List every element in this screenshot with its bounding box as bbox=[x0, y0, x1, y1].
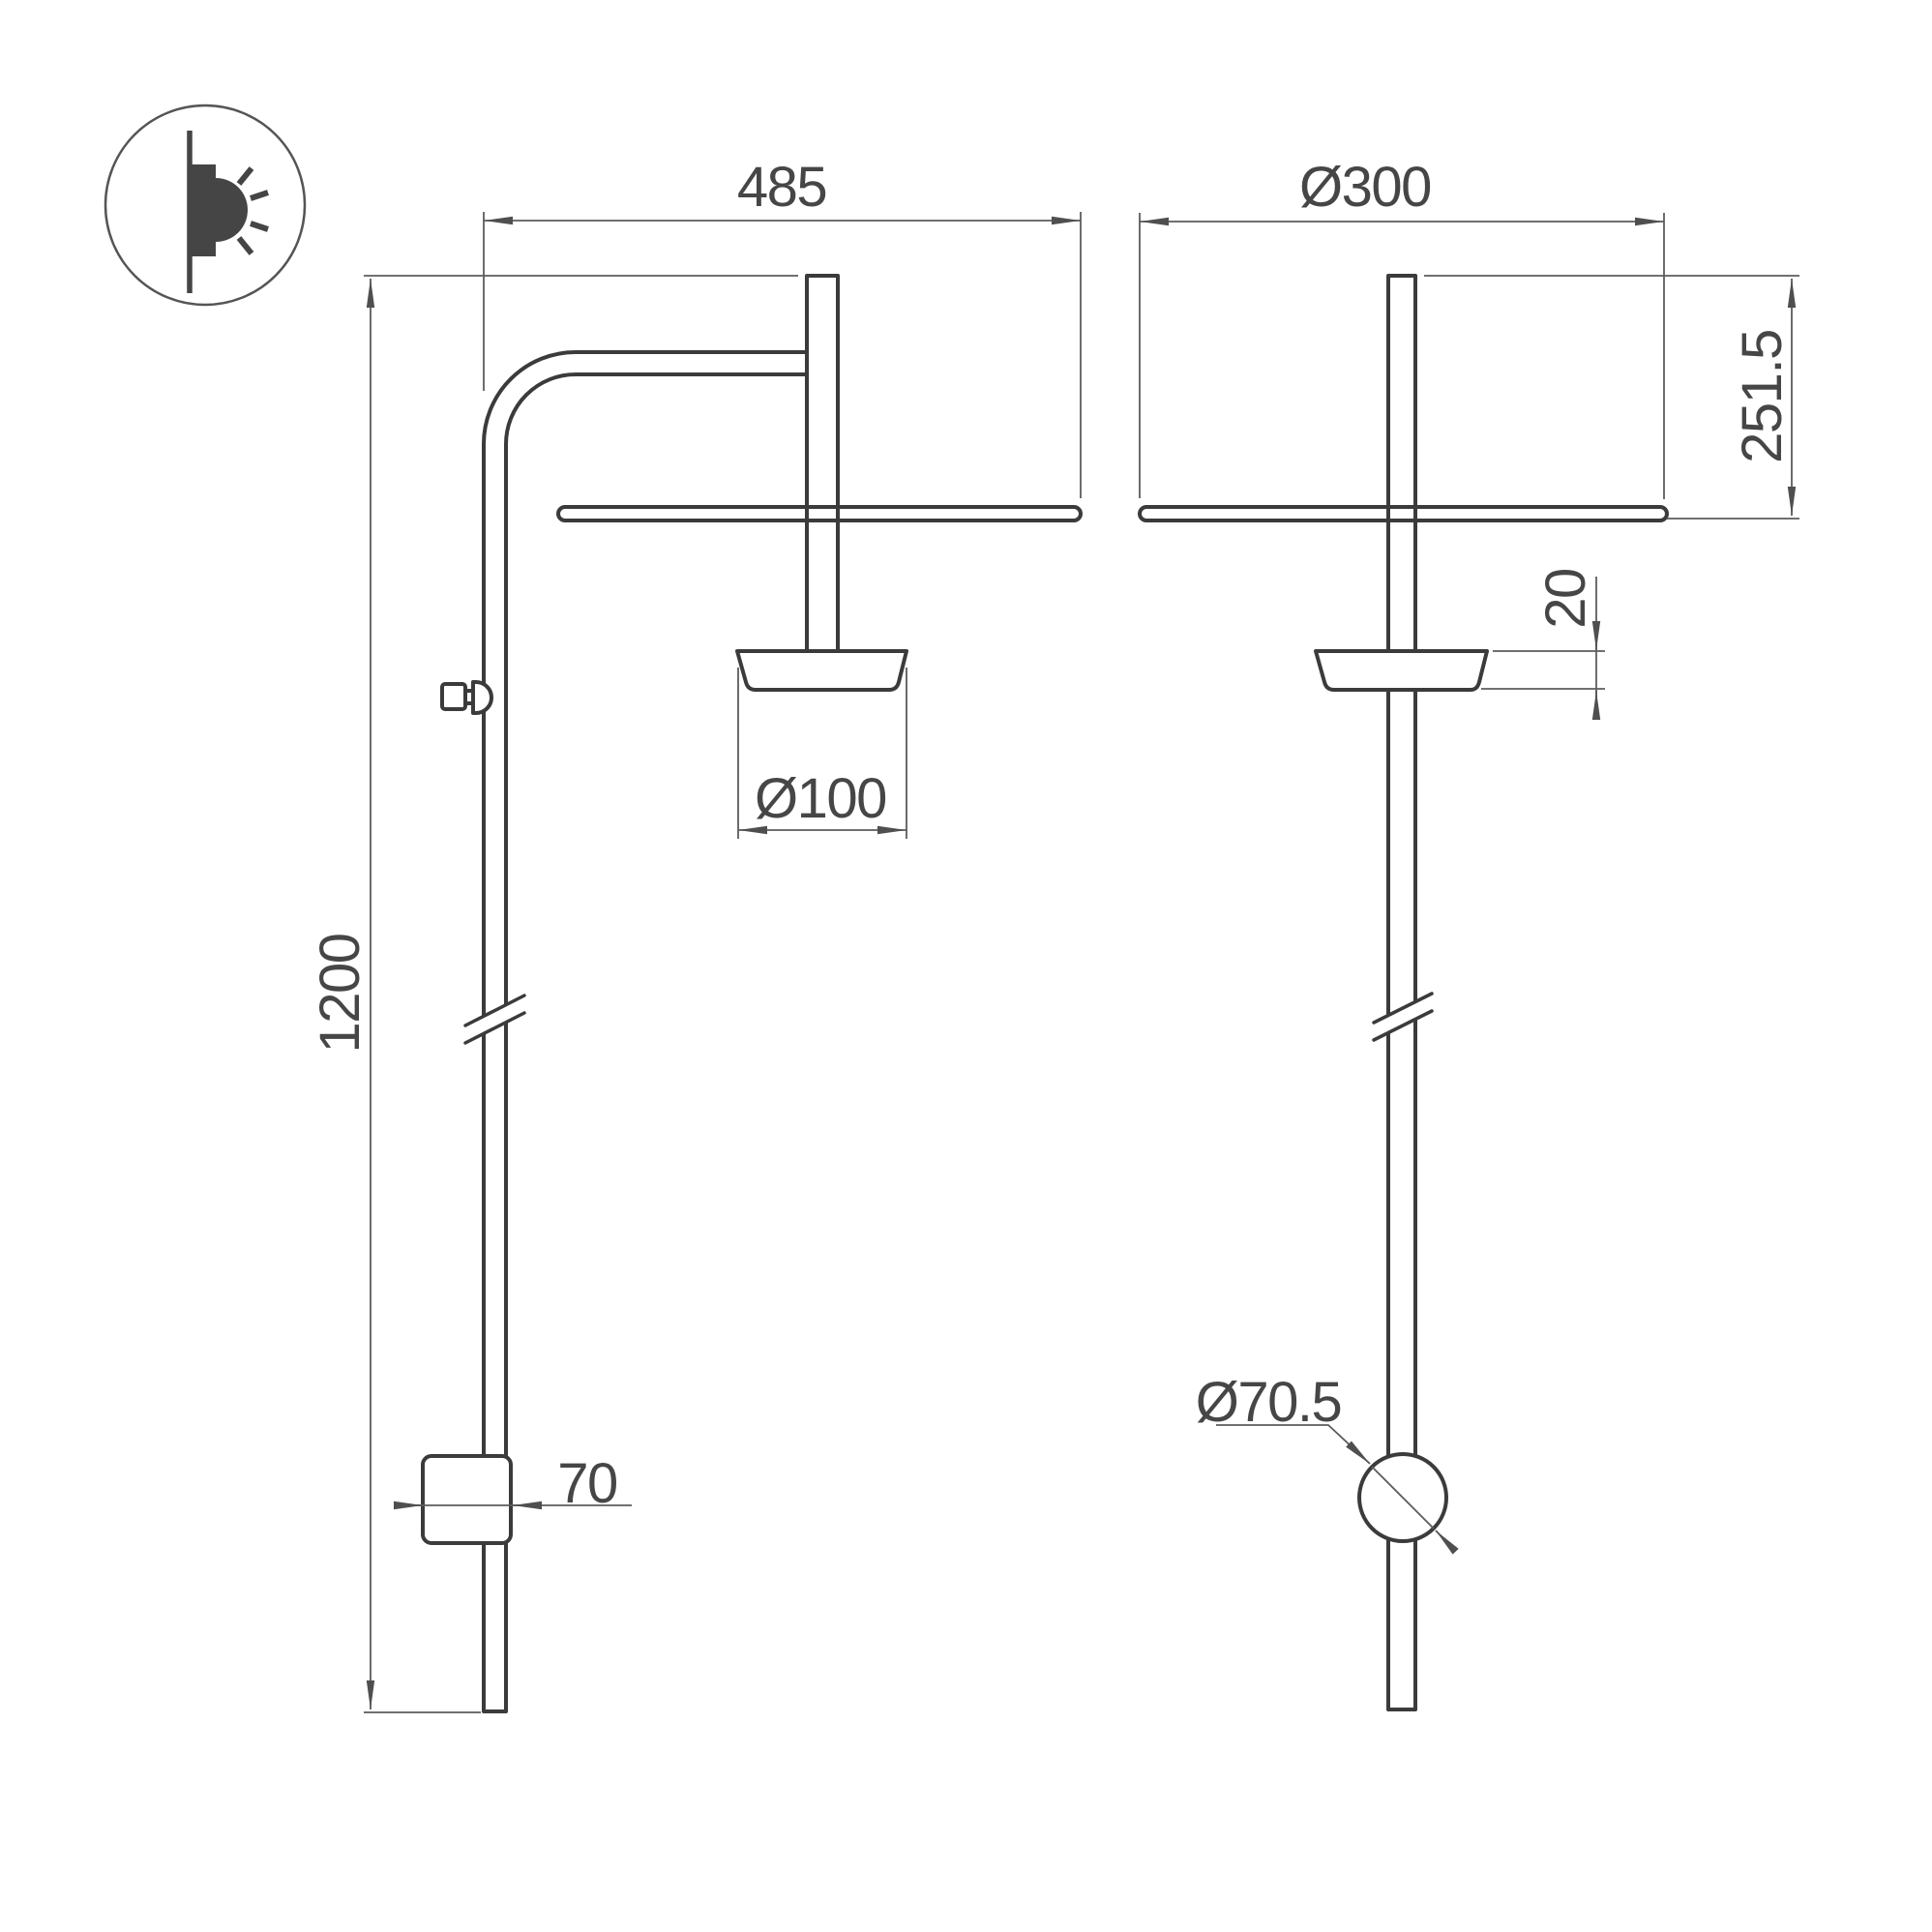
label-d100: Ø100 bbox=[755, 767, 886, 830]
label-d705: Ø70.5 bbox=[1196, 1371, 1342, 1434]
side-wall-box bbox=[423, 1456, 511, 1543]
side-pole-and-arm bbox=[484, 352, 807, 1711]
side-view bbox=[423, 276, 1081, 1711]
label-1200: 1200 bbox=[309, 934, 372, 1053]
front-holder-cone bbox=[1316, 651, 1487, 690]
side-switch-body bbox=[442, 684, 465, 709]
side-holder-cone bbox=[737, 651, 907, 690]
icon-lamp-dome bbox=[216, 178, 248, 242]
dimension-labels: 485 1200 Ø100 70 Ø300 251.5 20 Ø70.5 bbox=[309, 156, 1794, 1515]
label-70: 70 bbox=[557, 1452, 617, 1515]
front-view bbox=[1140, 276, 1667, 1709]
front-shade-disc bbox=[1140, 507, 1667, 520]
icon-light-ray-2 bbox=[251, 193, 268, 198]
side-switch-dome bbox=[473, 682, 491, 713]
label-485: 485 bbox=[737, 156, 826, 219]
icon-light-ray-4 bbox=[239, 238, 252, 253]
wall-light-icon bbox=[105, 105, 305, 305]
drawing-svg: 485 1200 Ø100 70 Ø300 251.5 20 Ø70.5 bbox=[0, 0, 1932, 1932]
front-rod-lower bbox=[1388, 690, 1415, 1709]
side-stem bbox=[807, 276, 838, 651]
dim-d705-arrow bbox=[1436, 1531, 1453, 1549]
icon-lamp-body bbox=[190, 164, 216, 256]
label-d300: Ø300 bbox=[1299, 156, 1431, 219]
side-shade-disc bbox=[558, 507, 1081, 520]
technical-drawing-canvas: 485 1200 Ø100 70 Ø300 251.5 20 Ø70.5 bbox=[0, 0, 1932, 1932]
label-2515: 251.5 bbox=[1731, 330, 1794, 463]
front-rod-upper bbox=[1388, 276, 1415, 651]
icon-light-ray-3 bbox=[251, 223, 268, 229]
label-20: 20 bbox=[1534, 569, 1597, 629]
icon-light-ray-1 bbox=[239, 168, 252, 184]
